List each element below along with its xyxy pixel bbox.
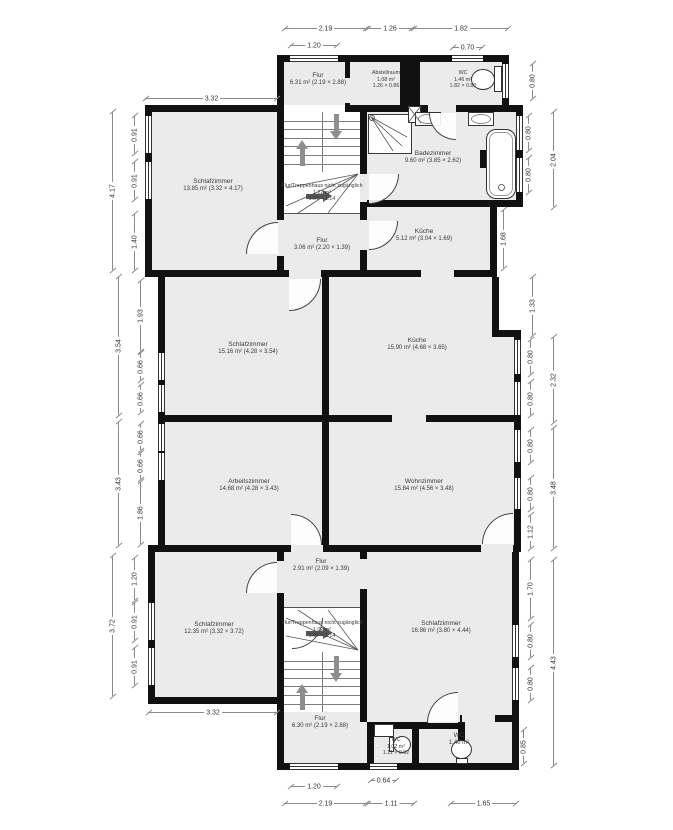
dimension-value: 1.26 xyxy=(381,26,399,33)
room-size: 1.07 × 1.14 xyxy=(281,633,362,640)
dimension-0.85: 0.85 xyxy=(523,730,524,763)
dimension-0.80: 0.80 xyxy=(530,340,531,374)
room-name: Flur xyxy=(294,237,350,245)
room-label-schlafzimmer-se: Schlafzimmer16.86 m² (3.80 × 4.44) xyxy=(411,620,471,636)
dimension-value: 0.66 xyxy=(138,457,145,475)
dimension-value: 0.80 xyxy=(528,675,535,693)
room-label-arbeitszimmer: Arbeitszimmer14.68 m² (4.28 × 3.43) xyxy=(219,478,279,494)
dimension-0.80: 0.80 xyxy=(532,64,533,98)
dimension-value: 3.54 xyxy=(116,337,123,355)
dimension-value: 0.66 xyxy=(138,358,145,376)
room-area: 3.06 m² (2.20 × 1.39) xyxy=(294,245,350,253)
dimension-3.54: 3.54 xyxy=(118,277,119,415)
dimension-3.32: 3.32 xyxy=(145,98,278,99)
room-label-badezimmer: Badezimmer9.60 m² (3.85 × 2.62) xyxy=(405,150,461,166)
dimension-value: 1.11 xyxy=(382,801,399,808)
room-name: WC xyxy=(449,732,469,740)
room-area: 16.86 m² (3.80 × 4.44) xyxy=(411,628,471,636)
dimension-value: 0.80 xyxy=(528,485,535,503)
dimension-1.82: 1.82 xyxy=(413,28,509,29)
dimension-0.91: 0.91 xyxy=(134,162,135,199)
dimension-0.80: 0.80 xyxy=(530,430,531,462)
room-area: 5.12 m² (3.04 × 1.69) xyxy=(396,236,452,244)
dimension-value: 1.93 xyxy=(138,307,145,325)
room-area: 12.35 m² (3.32 × 3.72) xyxy=(184,629,244,637)
dimension-1.65: 1.65 xyxy=(450,803,517,804)
dimension-value: 0.80 xyxy=(528,348,535,366)
room-area: 2.91 m² (2.09 × 1.39) xyxy=(293,566,349,574)
room-name: Schlafzimmer xyxy=(218,341,278,349)
dimension-1.20: 1.20 xyxy=(134,558,135,600)
room-label-kueche-gross: Küche15.90 m² (4.68 × 3.65) xyxy=(387,337,447,353)
dimension-1.68: 1.68 xyxy=(503,210,504,268)
room-name: Küche xyxy=(396,228,452,236)
dimension-3.43: 3.43 xyxy=(118,422,119,545)
room-name: Flur/Treppenhaus nicht zugänglich xyxy=(281,183,362,190)
dimension-2.32: 2.32 xyxy=(553,337,554,422)
dimension-0.80: 0.80 xyxy=(530,625,531,657)
dimension-value: 0.80 xyxy=(528,437,535,455)
dimension-value: 1.20 xyxy=(305,43,323,50)
room-area: 1.40 m² xyxy=(449,740,469,748)
room-label-treppenhaus-nord: Flur/Treppenhaus nicht zugänglich1.22 m²… xyxy=(281,183,362,203)
room-label-treppenhaus-sued: Flur/Treppenhaus nicht zugänglich1.02 m²… xyxy=(281,620,362,640)
dimension-1.33: 1.33 xyxy=(532,277,533,335)
dimension-0.80: 0.80 xyxy=(530,668,531,700)
dimension-value: 0.85 xyxy=(521,738,528,756)
room-name: Flur xyxy=(293,558,349,566)
dimension-value: 1.12 xyxy=(528,523,535,541)
dimension-value: 0.80 xyxy=(528,632,535,650)
room-area: 9.60 m² (3.85 × 2.62) xyxy=(405,158,461,166)
room-label-wc-nord: WC1.46 m²1.82 × 0.80 xyxy=(450,70,477,90)
room-name: Badezimmer xyxy=(405,150,461,158)
dimension-value: 0.91 xyxy=(132,126,139,144)
dimension-value: 0.66 xyxy=(138,428,145,446)
dimension-0.80: 0.80 xyxy=(528,116,529,150)
dimension-1.93: 1.93 xyxy=(140,281,141,351)
dimension-value: 0.80 xyxy=(526,124,533,142)
dimension-2.19: 2.19 xyxy=(284,803,367,804)
dimension-value: 0.91 xyxy=(132,172,139,190)
dimension-value: 2.19 xyxy=(317,801,335,808)
dimension-value: 2.32 xyxy=(551,371,558,389)
room-name: Schlafzimmer xyxy=(183,178,243,186)
dimension-value: 1.33 xyxy=(530,297,537,315)
dimension-0.66: 0.66 xyxy=(140,424,141,450)
dimension-4.17: 4.17 xyxy=(112,112,113,270)
dimension-0.91: 0.91 xyxy=(134,648,135,685)
dimension-1.20: 1.20 xyxy=(290,45,338,46)
room-name: Flur/Treppenhaus nicht zugänglich xyxy=(281,620,362,627)
dimension-value: 0.70 xyxy=(459,45,477,52)
room-label-kueche-klein: Küche5.12 m² (3.04 × 1.69) xyxy=(396,228,452,244)
dimension-value: 4.17 xyxy=(110,182,117,200)
dimension-0.80: 0.80 xyxy=(528,158,529,192)
dimension-1.11: 1.11 xyxy=(367,803,415,804)
dimension-value: 0.64 xyxy=(375,778,393,785)
dimension-value: 2.04 xyxy=(551,151,558,169)
room-label-schlafzimmer-mitte: Schlafzimmer15.16 m² (4.28 × 3.54) xyxy=(218,341,278,357)
dimension-value: 1.20 xyxy=(305,784,323,791)
dimension-1.40: 1.40 xyxy=(134,214,135,270)
dimension-value: 1.70 xyxy=(528,580,535,598)
dimension-3.72: 3.72 xyxy=(112,556,113,696)
dimension-3.32: 3.32 xyxy=(148,712,278,713)
dimension-value: 3.72 xyxy=(110,617,117,635)
room-label-schlafzimmer-nw: Schlafzimmer13.85 m² (3.32 × 4.17) xyxy=(183,178,243,194)
dimension-value: 0.66 xyxy=(138,390,145,408)
room-label-wc-klein: WC1.02 m²1.11 × 0.92 xyxy=(383,737,409,757)
dimension-3.48: 3.48 xyxy=(553,428,554,548)
room-area: 6.30 m² (2.19 × 2.88) xyxy=(292,723,348,731)
dimension-value: 0.80 xyxy=(526,166,533,184)
dimension-0.66: 0.66 xyxy=(140,385,141,412)
room-area: 13.85 m² (3.32 × 4.17) xyxy=(183,186,243,194)
dimension-0.66: 0.66 xyxy=(140,353,141,380)
dimension-value: 1.65 xyxy=(475,801,493,808)
dimension-1.20: 1.20 xyxy=(290,786,338,787)
dimension-2.19: 2.19 xyxy=(284,28,367,29)
dimension-1.12: 1.12 xyxy=(530,515,531,548)
dimension-0.66: 0.66 xyxy=(140,453,141,479)
dimension-1.86: 1.86 xyxy=(140,482,141,544)
dimension-value: 3.32 xyxy=(203,96,221,103)
room-area: 14.68 m² (4.28 × 3.43) xyxy=(219,486,279,494)
dimension-value: 2.19 xyxy=(317,26,335,33)
dimension-0.91: 0.91 xyxy=(134,116,135,153)
room-area: 15.16 m² (4.28 × 3.54) xyxy=(218,349,278,357)
plan-linework xyxy=(0,0,673,830)
room-name: Schlafzimmer xyxy=(184,621,244,629)
dimension-value: 1.20 xyxy=(132,570,139,588)
room-name: Arbeitszimmer xyxy=(219,478,279,486)
room-area: 15.90 m² (4.68 × 3.65) xyxy=(387,345,447,353)
floor-plan: Flur6.31 m² (2.19 × 2.88)Abstellraum1.08… xyxy=(0,0,673,830)
dimension-value: 4.43 xyxy=(551,654,558,672)
room-label-abstellraum: Abstellraum1.08 m²1.26 × 0.86 xyxy=(372,70,400,90)
room-size: 1.07 × 1.14 xyxy=(281,196,362,203)
dimension-value: 1.86 xyxy=(138,504,145,522)
room-name: Flur xyxy=(292,715,348,723)
room-label-wohnzimmer: Wohnzimmer15.84 m² (4.56 × 3.48) xyxy=(394,478,454,494)
dimension-0.91: 0.91 xyxy=(134,603,135,640)
dimension-value: 1.82 xyxy=(452,26,470,33)
room-label-schlafzimmer-sw: Schlafzimmer12.35 m² (3.32 × 3.72) xyxy=(184,621,244,637)
dimension-2.04: 2.04 xyxy=(553,112,554,207)
room-name: Wohnzimmer xyxy=(394,478,454,486)
room-size: 1.11 × 0.92 xyxy=(383,750,409,757)
room-label-wc-sued: WC1.40 m² xyxy=(449,732,469,748)
room-size: 1.26 × 0.86 xyxy=(372,83,400,90)
dimension-value: 0.80 xyxy=(528,390,535,408)
dimension-value: 3.32 xyxy=(204,710,222,717)
room-name: Abstellraum xyxy=(372,70,400,77)
dimension-value: 0.91 xyxy=(132,658,139,676)
room-label-flur-sued: Flur6.30 m² (2.19 × 2.88) xyxy=(292,715,348,731)
dimension-1.26: 1.26 xyxy=(367,28,413,29)
dimension-value: 3.43 xyxy=(116,475,123,493)
dimension-0.80: 0.80 xyxy=(530,382,531,415)
room-name: Schlafzimmer xyxy=(411,620,471,628)
dimension-value: 3.48 xyxy=(551,479,558,497)
room-size: 1.82 × 0.80 xyxy=(450,83,477,90)
dimension-value: 0.80 xyxy=(530,72,537,90)
dimension-value: 0.91 xyxy=(132,613,139,631)
room-name: Flur xyxy=(290,72,346,80)
room-label-flur-mitte: Flur3.06 m² (2.20 × 1.39) xyxy=(294,237,350,253)
dimension-4.43: 4.43 xyxy=(553,560,554,765)
dimension-0.64: 0.64 xyxy=(370,780,397,781)
room-area: 6.31 m² (2.19 × 2.88) xyxy=(290,80,346,88)
dimension-0.80: 0.80 xyxy=(530,478,531,509)
room-label-flur-klein: Flur2.91 m² (2.09 × 1.39) xyxy=(293,558,349,574)
room-name: Küche xyxy=(387,337,447,345)
dimension-value: 1.40 xyxy=(132,233,139,251)
room-area: 15.84 m² (4.56 × 3.48) xyxy=(394,486,454,494)
dimension-0.70: 0.70 xyxy=(452,47,483,48)
room-label-flur-og-nord: Flur6.31 m² (2.19 × 2.88) xyxy=(290,72,346,88)
dimension-value: 1.68 xyxy=(501,230,508,248)
dimension-1.70: 1.70 xyxy=(530,560,531,618)
